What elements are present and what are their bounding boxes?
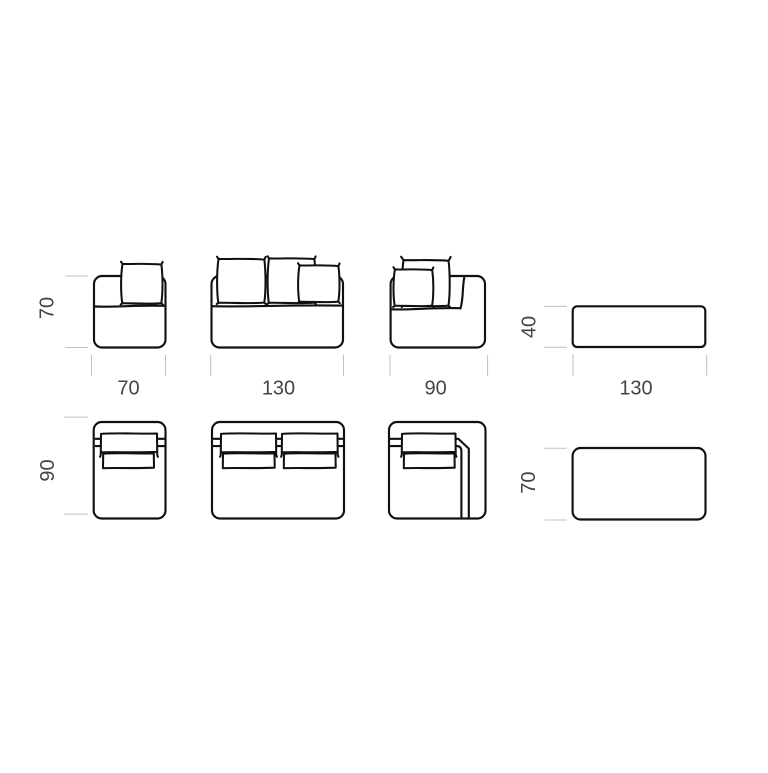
svg-text:90: 90: [37, 459, 59, 481]
svg-text:70: 70: [518, 471, 540, 493]
svg-text:70: 70: [37, 297, 59, 319]
svg-text:130: 130: [262, 378, 295, 400]
svg-text:70: 70: [117, 378, 139, 400]
svg-text:130: 130: [619, 378, 652, 400]
svg-text:90: 90: [424, 378, 446, 400]
svg-text:40: 40: [519, 316, 541, 338]
